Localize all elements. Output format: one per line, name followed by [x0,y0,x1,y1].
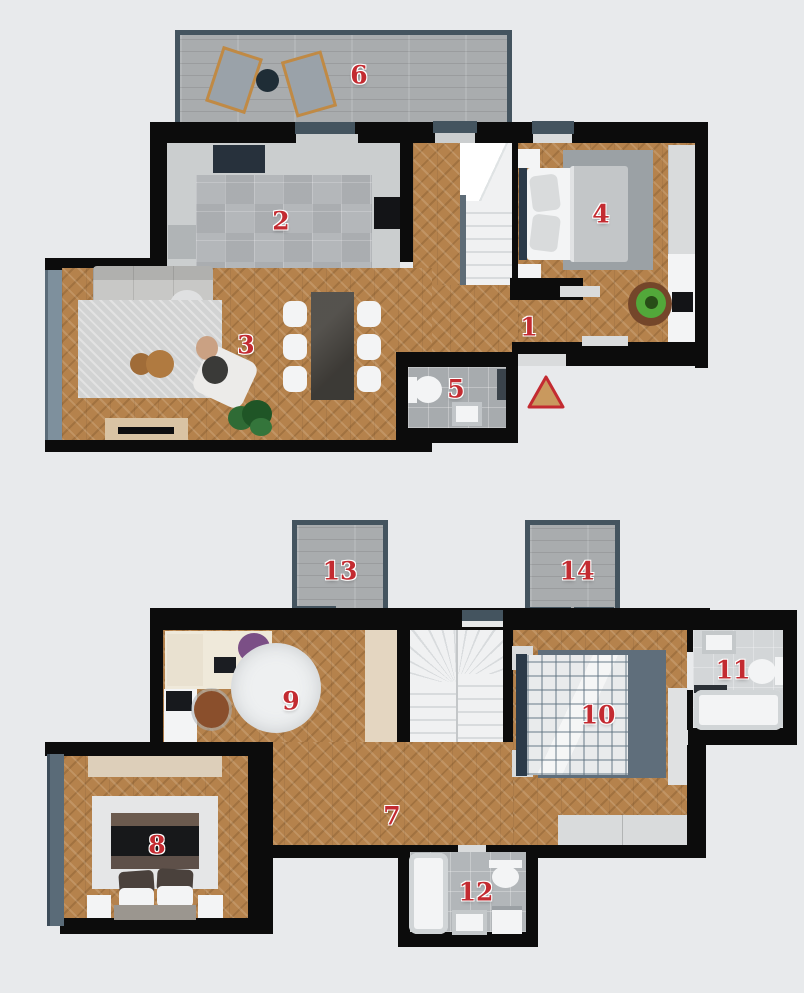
living-room-glazing [45,270,62,440]
washing-machine [492,906,522,934]
dining-chair [357,301,381,327]
staircase-upper [460,143,512,285]
bed8-bench [114,905,196,920]
wall [150,122,708,145]
pillow [157,886,193,907]
bathroom-sink [702,631,736,654]
bed8-headboard [111,813,199,827]
room-label-1: 1 [520,315,537,340]
laptop [672,292,693,312]
pillow [529,213,561,252]
room8-window [47,754,64,926]
toilet [492,866,519,888]
wall [62,438,432,452]
room-label-8: 8 [148,833,165,858]
room-label-2: 2 [272,209,289,234]
wall [687,728,797,745]
kitchen-appliance [168,225,196,259]
dining-chair [283,366,307,392]
wall [397,630,410,755]
bathtub [694,690,783,730]
wall [506,352,518,432]
pillow [529,173,561,212]
dog [202,356,228,384]
wall [45,438,62,452]
bathroom-sink [452,910,487,935]
room-label-5: 5 [447,377,464,402]
terrace-table [256,69,279,92]
bathroom-sink [452,402,482,426]
staircase-lower [410,630,503,757]
dining-table [311,292,354,400]
wall [45,742,250,756]
dining-chair [357,366,381,392]
wall [783,610,797,745]
room9-round-rug [231,643,321,733]
door-sill [582,336,628,346]
toilet [748,659,776,684]
entrance-triangle [527,374,565,410]
dining-chair [283,334,307,360]
wall [513,845,706,858]
terrace-door-sill [435,133,475,143]
wall [400,143,413,262]
toilet-tank [775,657,783,685]
office-chair [194,691,229,728]
bedroom10-dresser [558,815,688,845]
nightstand [518,149,540,168]
bedroom10-wardrobe [668,688,688,785]
bedroom-window-sill [533,134,572,143]
wall [150,122,167,270]
sun-lounger [205,46,263,114]
stair-window [462,610,503,621]
hallway-upper-floor-strip [413,143,460,285]
room-label-11: 11 [716,658,751,683]
wall [396,428,518,443]
stair-stringer [460,195,466,285]
bed10-headboard [516,654,527,776]
terrace-door [433,121,477,133]
room-label-4: 4 [592,202,609,227]
floor-plan-canvas: 1 2 3 4 5 6 7 8 9 10 11 12 13 14 [0,0,804,993]
room-label-13: 13 [323,559,358,584]
room-label-10: 10 [581,703,616,728]
room-label-12: 12 [459,880,494,905]
room-label-6: 6 [350,63,367,88]
room9-pillows [167,634,203,686]
laptop [214,657,236,673]
sun-lounger [281,50,337,117]
entry-threshold [518,354,566,366]
nightstand [87,895,111,918]
wall [687,610,797,630]
wall [248,742,273,933]
stair-landing [460,143,512,201]
room-label-9: 9 [282,689,299,714]
wall [526,845,538,944]
stair-treads [410,682,456,738]
wall [396,352,506,367]
coffee-table [146,350,174,378]
terrace [175,30,512,124]
dining-chair [283,301,307,327]
wall [687,745,706,858]
plant [250,418,272,436]
room8-wardrobe [88,756,222,777]
room-label-7: 7 [383,804,400,829]
bedroom-window [532,121,574,134]
bed-headboard [519,166,527,260]
dining-chair [357,334,381,360]
toilet [414,376,442,403]
bathtub [409,853,448,934]
wall [273,845,405,858]
nightstand [198,895,223,918]
door-sill [560,286,600,297]
kitchen-sink [213,145,265,173]
wall [150,608,163,748]
cooktop [374,197,400,229]
stair-window-sill [462,621,503,627]
wall [150,608,710,630]
wall [60,918,273,934]
stair-treads [466,201,512,285]
bathroom-cabinet [497,369,506,400]
person-at-desk-head [645,296,658,309]
wall [695,122,708,368]
tv [118,427,174,434]
stair-divider [456,630,458,757]
room-label-14: 14 [560,559,595,584]
kitchen-window [295,122,355,134]
room-label-3: 3 [237,333,254,358]
monitor [166,691,192,711]
